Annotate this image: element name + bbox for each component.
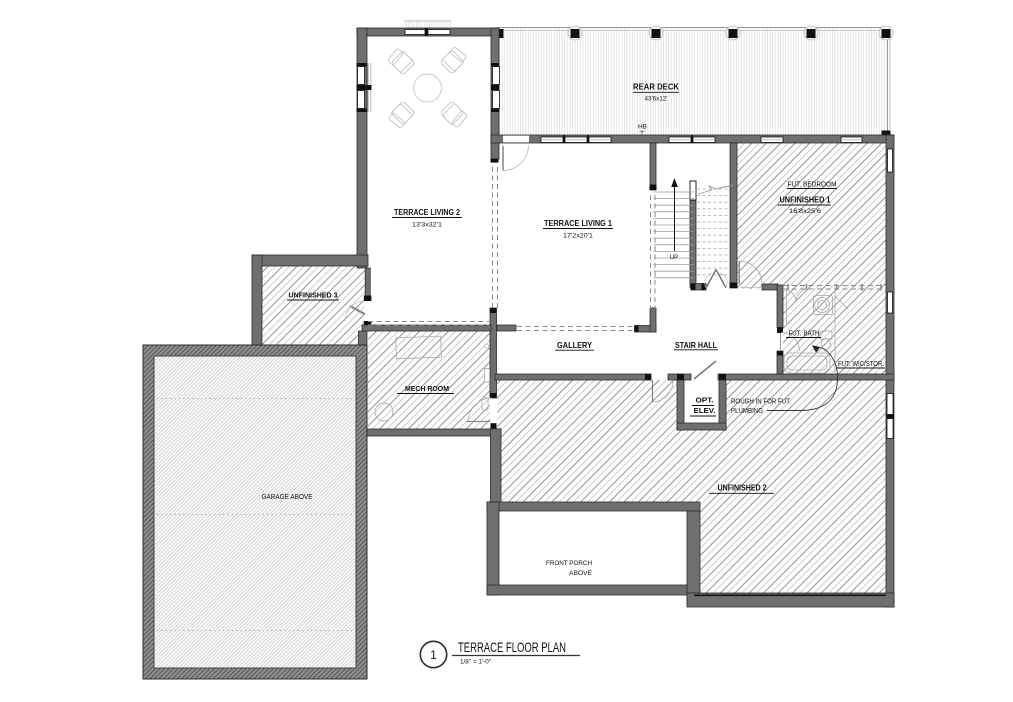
svg-text:TERRACE FLOOR PLAN: TERRACE FLOOR PLAN — [458, 639, 566, 655]
svg-text:FUT. BEDROOM: FUT. BEDROOM — [788, 182, 837, 189]
svg-text:UNFINISHED 1: UNFINISHED 1 — [780, 196, 832, 205]
svg-text:16'8x25'6: 16'8x25'6 — [789, 208, 821, 215]
svg-text:UP: UP — [670, 255, 678, 261]
svg-text:13'3x32'1: 13'3x32'1 — [412, 222, 442, 229]
svg-text:OPT.: OPT. — [696, 396, 714, 405]
svg-text:1/8" = 1'-0": 1/8" = 1'-0" — [460, 659, 492, 666]
svg-text:TERRACE LIVING 2: TERRACE LIVING 2 — [394, 208, 460, 217]
svg-text:GALLERY: GALLERY — [557, 340, 592, 350]
svg-text:ROUGH IN FOR FUT.: ROUGH IN FOR FUT. — [731, 399, 791, 406]
svg-text:43'6x12': 43'6x12' — [645, 96, 668, 103]
svg-text:PLUMBING: PLUMBING — [731, 408, 763, 415]
svg-text:FUT. BATH: FUT. BATH — [789, 331, 820, 338]
svg-text:GARAGE ABOVE: GARAGE ABOVE — [262, 494, 313, 501]
svg-text:1: 1 — [430, 648, 437, 662]
svg-text:ABOVE: ABOVE — [569, 570, 593, 577]
svg-text:FUT. WIC/STOR.: FUT. WIC/STOR. — [838, 361, 884, 368]
svg-text:UNFINISHED 2: UNFINISHED 2 — [718, 484, 767, 493]
svg-text:UNFINISHED 3: UNFINISHED 3 — [289, 293, 338, 300]
svg-text:REAR DECK: REAR DECK — [633, 82, 680, 92]
svg-text:TERRACE LIVING 1: TERRACE LIVING 1 — [544, 219, 613, 228]
svg-text:HB: HB — [638, 124, 647, 131]
svg-text:FRONT PORCH: FRONT PORCH — [546, 560, 592, 567]
svg-text:MECH ROOM: MECH ROOM — [405, 384, 449, 393]
svg-text:ELEV.: ELEV. — [694, 406, 716, 415]
svg-text:STAIR HALL: STAIR HALL — [675, 340, 717, 350]
svg-text:17'2x20'1: 17'2x20'1 — [563, 233, 593, 240]
